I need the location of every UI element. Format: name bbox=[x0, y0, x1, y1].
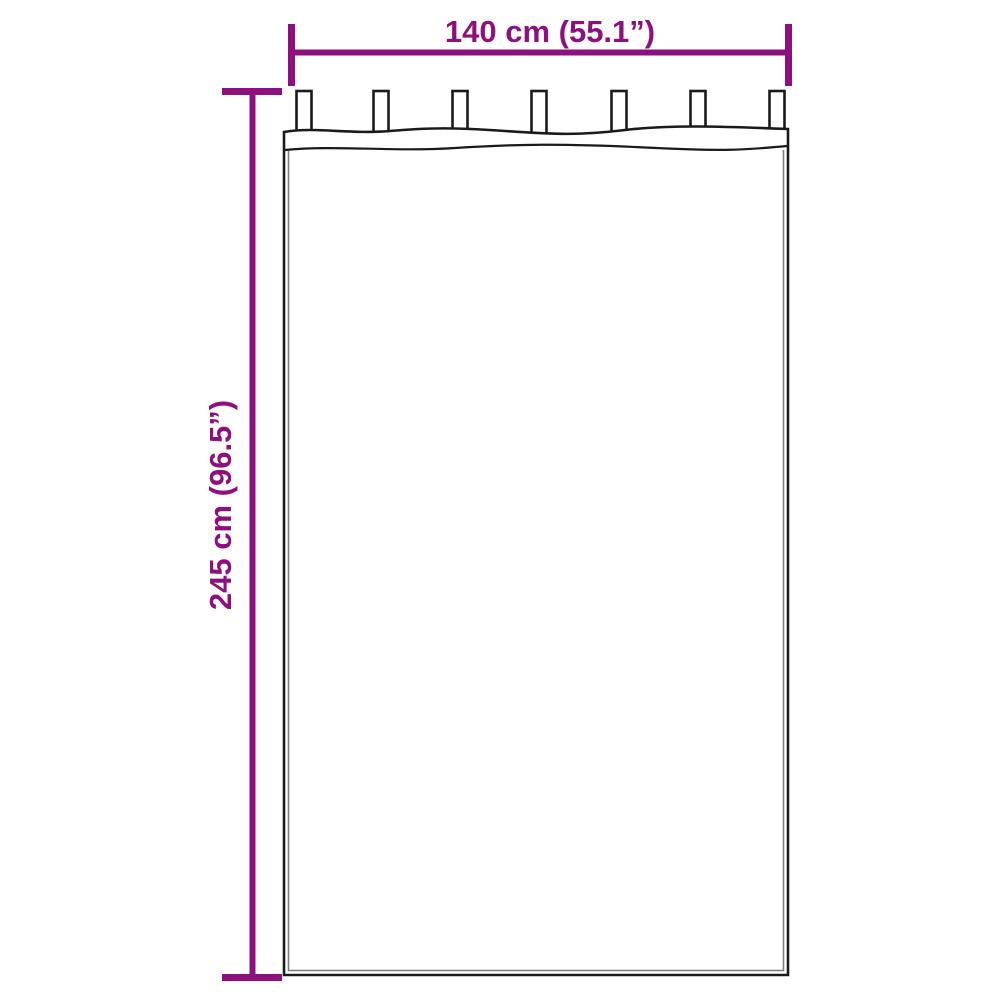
height-dimension: 245 cm (96.5”) bbox=[203, 91, 282, 978]
curtain-tab bbox=[612, 91, 627, 135]
curtain-outline bbox=[284, 126, 788, 975]
curtain-tab bbox=[297, 91, 312, 135]
width-dimension-label: 140 cm (55.1”) bbox=[445, 14, 655, 49]
diagram-canvas: 140 cm (55.1”) 245 cm (96.5”) bbox=[0, 0, 1000, 1000]
curtain-tab bbox=[532, 91, 547, 135]
height-dimension-label: 245 cm (96.5”) bbox=[203, 400, 238, 610]
curtain-dimension-diagram: 140 cm (55.1”) 245 cm (96.5”) bbox=[0, 0, 1000, 1000]
curtain-tab bbox=[374, 91, 389, 135]
curtain-drawing bbox=[284, 91, 788, 975]
width-dimension: 140 cm (55.1”) bbox=[291, 14, 789, 86]
